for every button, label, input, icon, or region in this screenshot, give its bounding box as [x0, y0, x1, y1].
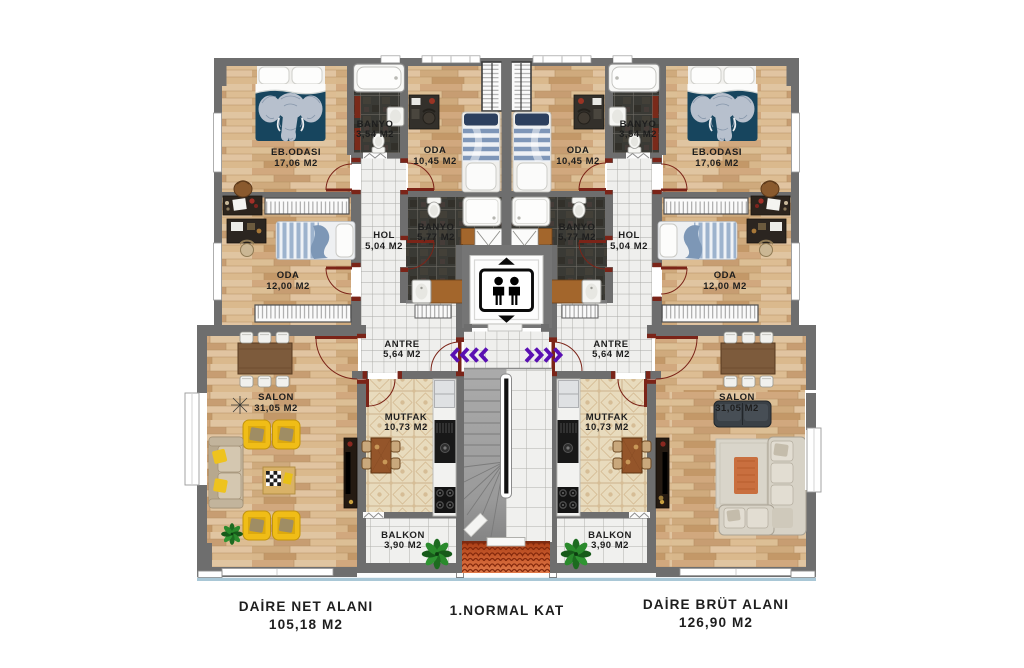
svg-text:HOL: HOL	[373, 230, 395, 241]
svg-text:17,06 M2: 17,06 M2	[274, 158, 318, 169]
svg-text:EB.ODASI: EB.ODASI	[692, 147, 742, 158]
svg-text:SALON: SALON	[719, 392, 755, 403]
svg-text:ODA: ODA	[424, 145, 447, 156]
svg-text:12,00 M2: 12,00 M2	[703, 281, 747, 292]
svg-text:EB.ODASI: EB.ODASI	[271, 147, 321, 158]
svg-text:HOL: HOL	[618, 230, 640, 241]
svg-text:5,64 M2: 5,64 M2	[383, 349, 421, 360]
svg-text:5,77 M2: 5,77 M2	[417, 232, 455, 243]
svg-text:31,05 M2: 31,05 M2	[254, 403, 298, 414]
svg-text:105,18 M2: 105,18 M2	[269, 617, 343, 632]
svg-text:10,73 M2: 10,73 M2	[585, 422, 629, 433]
svg-text:5,04 M2: 5,04 M2	[610, 241, 648, 252]
svg-text:31,05 M2: 31,05 M2	[715, 403, 759, 414]
svg-text:5,77 M2: 5,77 M2	[558, 232, 596, 243]
svg-text:3,54 M2: 3,54 M2	[356, 129, 394, 140]
svg-text:ODA: ODA	[714, 270, 737, 281]
svg-text:ODA: ODA	[277, 270, 300, 281]
svg-text:17,06 M2: 17,06 M2	[695, 158, 739, 169]
svg-text:5,04 M2: 5,04 M2	[365, 241, 403, 252]
svg-text:12,00 M2: 12,00 M2	[266, 281, 310, 292]
svg-text:126,90 M2: 126,90 M2	[679, 615, 753, 630]
svg-text:1.NORMAL KAT: 1.NORMAL KAT	[450, 603, 565, 618]
svg-text:ODA: ODA	[567, 145, 590, 156]
svg-text:5,64 M2: 5,64 M2	[592, 349, 630, 360]
svg-text:3,90 M2: 3,90 M2	[384, 540, 422, 551]
svg-text:SALON: SALON	[258, 392, 294, 403]
svg-text:3,54 M2: 3,54 M2	[619, 129, 657, 140]
svg-text:10,73 M2: 10,73 M2	[384, 422, 428, 433]
svg-text:DAİRE BRÜT ALANI: DAİRE BRÜT ALANI	[643, 597, 789, 612]
svg-text:10,45 M2: 10,45 M2	[556, 156, 600, 167]
svg-text:DAİRE NET ALANI: DAİRE NET ALANI	[239, 599, 374, 614]
svg-text:10,45 M2: 10,45 M2	[413, 156, 457, 167]
svg-text:3,90 M2: 3,90 M2	[591, 540, 629, 551]
